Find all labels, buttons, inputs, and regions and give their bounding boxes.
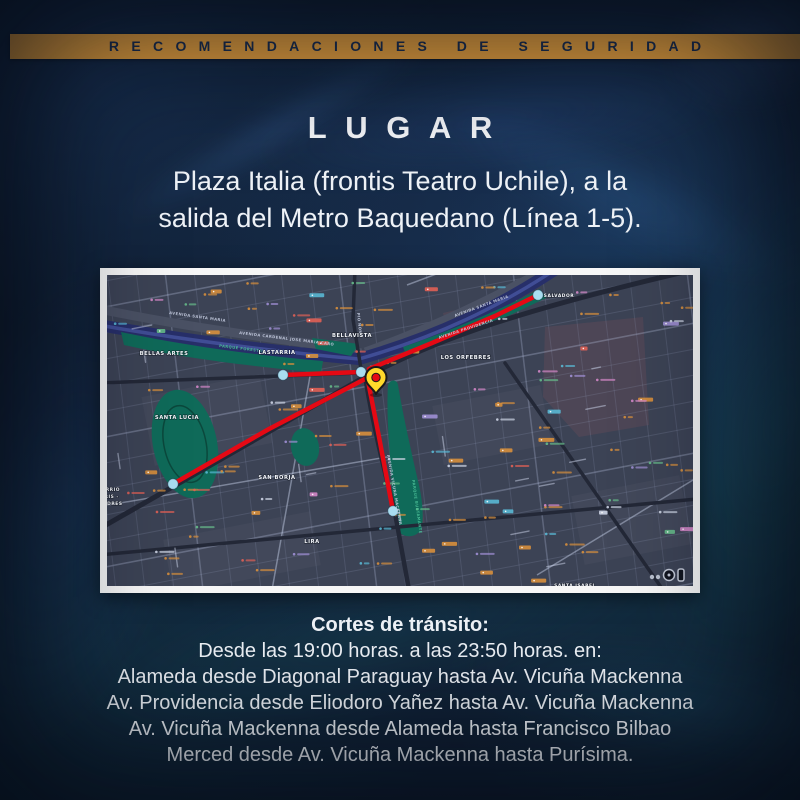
- map-poi-label: [356, 282, 365, 284]
- map-poi-label: [488, 517, 495, 519]
- map-poi-glyph: [254, 512, 256, 514]
- map-poi-dot: [484, 516, 487, 519]
- map-poi-label: [297, 553, 309, 555]
- map-poi-label: [225, 470, 236, 472]
- map-poi-dot: [552, 471, 555, 474]
- neighborhood-label: BARRIO: [107, 487, 120, 493]
- security-banner: RECOMENDACIONES DE SEGURIDAD: [10, 34, 800, 59]
- closure-route-merced: [283, 372, 361, 375]
- map-poi-chip: [425, 287, 438, 291]
- neighborhood-label: PARIS -: [107, 494, 119, 500]
- map-poi-dot: [544, 504, 547, 507]
- map-poi-label: [391, 362, 397, 364]
- map-poi-label: [334, 485, 348, 487]
- map-poi-label: [543, 427, 550, 429]
- map-poi-label: [275, 402, 286, 404]
- map-poi-chip: [480, 571, 493, 575]
- map-poi-dot: [283, 363, 286, 366]
- map-poi-glyph: [147, 472, 149, 474]
- map-poi-dot: [481, 286, 484, 289]
- map-poi-label: [653, 462, 663, 464]
- map-poi-dot: [329, 444, 332, 447]
- map-poi-label: [171, 573, 183, 575]
- map-poi-glyph: [502, 450, 504, 452]
- map-poi-dot: [538, 370, 541, 373]
- map-poi-label: [557, 471, 572, 473]
- map-poi-dot: [431, 450, 434, 453]
- map-poi-label: [500, 419, 515, 421]
- map-poi-dot: [153, 489, 156, 492]
- map-poi-dot: [476, 553, 479, 556]
- map-poi-label: [364, 562, 370, 564]
- map-poi-label: [565, 365, 575, 367]
- map-poi-dot: [155, 551, 158, 554]
- map-poi-chip: [500, 448, 513, 452]
- map-poi-label: [635, 466, 647, 468]
- map-poi-label: [613, 499, 619, 501]
- map-poi-label: [420, 508, 430, 510]
- map-poi-dot: [680, 469, 683, 472]
- map-poi-glyph: [311, 389, 313, 391]
- map-poi-label: [574, 375, 585, 377]
- map-poi-dot: [496, 418, 499, 421]
- traffic-heading: Cortes de tránsito:: [0, 612, 800, 638]
- map-poi-dot: [204, 293, 207, 296]
- map-poi-label: [381, 563, 392, 565]
- map-poi-dot: [539, 379, 542, 382]
- map-poi-dot: [167, 573, 170, 576]
- map-image: AVENIDA SANTA MARIAAVENIDA CARDENAL JOSE…: [107, 275, 693, 586]
- map-poi-label: [392, 458, 405, 460]
- map-poi-label: [169, 557, 180, 559]
- map-poi-label: [365, 324, 373, 326]
- map-poi-dot: [330, 485, 333, 488]
- map-poi-dot: [377, 562, 380, 565]
- map-poi-dot: [474, 388, 477, 391]
- map-poi-label: [452, 465, 467, 467]
- map-poi-glyph: [682, 528, 684, 530]
- map-poi-dot: [220, 470, 223, 473]
- map-poi-label: [663, 511, 677, 513]
- map-poi-dot: [241, 559, 244, 562]
- map-poi-dot: [596, 379, 599, 382]
- closure-line: Merced desde Av. Vicuña Mackenna hasta P…: [0, 742, 800, 768]
- map-poi-dot: [256, 569, 259, 572]
- map-poi-label: [208, 293, 217, 295]
- map-poi-dot: [127, 492, 130, 495]
- map-poi-chip: [157, 329, 166, 333]
- banner-text: RECOMENDACIONES DE SEGURIDAD: [97, 38, 714, 54]
- map-poi-dot: [561, 365, 564, 368]
- map-poi-dot: [269, 327, 272, 330]
- map-poi-label: [200, 386, 210, 388]
- map-poi-dot: [336, 307, 339, 310]
- map-poi-glyph: [424, 550, 426, 552]
- map-poi-label: [228, 466, 239, 468]
- map-poi-dot: [193, 489, 196, 492]
- location-line-2: salida del Metro Baquedano (Línea 1-5).: [0, 200, 800, 237]
- map-poi-label: [271, 303, 279, 305]
- map-poi-glyph: [550, 411, 552, 413]
- neighborhood-label: SAN BORJA: [258, 475, 295, 481]
- map-poi-chip: [145, 470, 157, 474]
- neighborhood-label: LOS ORFEBRES: [441, 355, 491, 361]
- map-poi-dot: [666, 464, 669, 467]
- map-poi-label: [287, 363, 294, 365]
- map-poi-dot: [610, 449, 613, 452]
- map-poi-dot: [189, 535, 192, 538]
- map-poi-glyph: [482, 572, 484, 574]
- map-poi-dot: [156, 511, 159, 514]
- map-poi-label: [334, 444, 347, 446]
- map-poi-dot: [570, 375, 573, 378]
- map-poi-chip: [503, 509, 514, 513]
- map-poi-label: [453, 519, 466, 521]
- map-poi-dot: [670, 320, 673, 323]
- map-poi-dot: [608, 499, 611, 502]
- route-endpoint: [168, 479, 178, 489]
- map-poi-glyph: [505, 511, 507, 513]
- map-poi-label: [159, 551, 174, 553]
- map-poi-label: [193, 536, 198, 538]
- map-poi-glyph: [667, 531, 669, 533]
- map-poi-label: [569, 543, 584, 545]
- neighborhood-label: BELLAVISTA: [332, 333, 372, 339]
- map-poi-chip: [680, 527, 693, 531]
- map-poi-glyph: [312, 295, 314, 297]
- map-poi-dot: [498, 318, 501, 321]
- map-poi-glyph: [358, 433, 360, 435]
- map-poi-label: [665, 302, 670, 304]
- map-poi-label: [635, 400, 647, 402]
- map-poi-glyph: [312, 494, 314, 496]
- map-poi-dot: [246, 282, 249, 285]
- map-poi-dot: [374, 309, 377, 312]
- map-poi-chip: [599, 511, 608, 515]
- map-poi-glyph: [213, 291, 215, 293]
- map-poi-glyph: [665, 323, 667, 325]
- map-poi-glyph: [541, 439, 543, 441]
- map-poi-dot: [631, 466, 634, 469]
- map-poi-glyph: [159, 330, 161, 332]
- map-poi-label: [584, 313, 599, 315]
- map-poi-label: [480, 553, 495, 555]
- map-poi-label: [188, 489, 199, 491]
- location-text: Plaza Italia (frontis Teatro Uchile), a …: [0, 163, 800, 237]
- map-poi-dot: [293, 553, 296, 556]
- map-poi-label: [273, 327, 280, 329]
- neighborhood-label: LASTARRIA: [258, 350, 295, 356]
- map-poi-glyph: [487, 501, 489, 503]
- map-poi-label: [478, 388, 486, 390]
- map-poi-chip: [206, 330, 219, 334]
- map-poi-glyph: [521, 547, 523, 549]
- map-poi-label: [614, 449, 619, 451]
- map-poi-dot: [609, 294, 612, 297]
- map-poi-dot: [293, 314, 296, 317]
- map-poi-dot: [164, 557, 167, 560]
- map-poi-label: [685, 469, 693, 471]
- map-poi-dot: [284, 440, 287, 443]
- map-poi-dot: [660, 302, 663, 305]
- map-poi-label: [670, 464, 678, 466]
- map-poi-dot: [196, 385, 199, 388]
- route-endpoint: [278, 370, 288, 380]
- map-poi-dot: [681, 306, 684, 309]
- map-poi-label: [586, 551, 599, 553]
- map-poi-label: [674, 320, 684, 322]
- map-poi-glyph: [497, 404, 499, 406]
- map-poi-label: [544, 379, 558, 381]
- map-poi-dot: [582, 551, 585, 554]
- map-poi-glyph: [308, 355, 310, 357]
- map-poi-dot: [114, 322, 117, 325]
- map-poi-dot: [539, 426, 542, 429]
- map-poi-label: [246, 559, 256, 561]
- map-poi-dot: [248, 307, 251, 310]
- map-poi-glyph: [444, 543, 446, 545]
- map-poi-label: [319, 435, 332, 437]
- map-poi-label: [297, 314, 310, 316]
- map-poi-label: [502, 318, 507, 320]
- dots-icon: [650, 575, 654, 579]
- map-poi-dot: [606, 506, 609, 509]
- map-poi-dot: [270, 401, 273, 404]
- closure-line: Av. Vicuña Mackenna desde Alameda hasta …: [0, 716, 800, 742]
- map-poi-dot: [511, 465, 514, 468]
- map-poi-glyph: [309, 320, 311, 322]
- map-poi-chip: [251, 511, 260, 515]
- map-poi-dot: [261, 498, 264, 501]
- closure-line: Av. Providencia desde Eliodoro Yañez has…: [0, 690, 800, 716]
- map-poi-chip: [306, 354, 318, 358]
- map-poi-label: [157, 490, 165, 492]
- map-poi-dot: [351, 282, 354, 285]
- map-poi-chip: [519, 546, 531, 550]
- map-frame: AVENIDA SANTA MARIAAVENIDA CARDENAL JOSE…: [100, 268, 700, 593]
- map-poi-dot: [576, 291, 579, 294]
- map-poi-glyph: [293, 405, 295, 407]
- map-poi-label: [197, 489, 209, 491]
- map-poi-dot: [545, 533, 548, 536]
- map-poi-label: [549, 533, 556, 535]
- map-poi-dot: [360, 562, 363, 565]
- map-poi-label: [485, 287, 495, 289]
- map-poi-label: [155, 299, 164, 301]
- map-poi-label: [118, 323, 127, 325]
- map-poi-chip: [310, 492, 318, 496]
- map-poi-dot: [546, 442, 549, 445]
- map-poi-dot: [184, 303, 187, 306]
- map-poi-label: [497, 286, 505, 288]
- map-poi-chip: [291, 404, 302, 408]
- map-poi-dot: [205, 471, 208, 474]
- map-poi-label: [685, 307, 693, 309]
- map-poi-label: [283, 408, 298, 410]
- map-poi-label: [436, 451, 450, 453]
- map-poi-label: [600, 379, 615, 381]
- route-endpoint: [533, 290, 543, 300]
- map-poi-label: [265, 498, 272, 500]
- map-poi-glyph: [424, 416, 426, 418]
- neighborhood-label: LIRA: [304, 539, 319, 545]
- traffic-info: Cortes de tránsito: Desde las 19:00 hora…: [0, 612, 800, 768]
- map-poi-label: [152, 389, 163, 391]
- map-poi-label: [340, 307, 353, 309]
- map-poi-glyph: [209, 332, 211, 334]
- map-poi-label: [189, 303, 197, 305]
- map-poi-label: [628, 416, 633, 418]
- map-poi-label: [613, 294, 618, 296]
- neighborhood-label: LONDRES: [107, 501, 123, 507]
- map-poi-glyph: [451, 460, 453, 462]
- map-poi-label: [334, 385, 339, 387]
- map-poi-dot: [565, 543, 568, 546]
- map-poi-label: [360, 351, 366, 353]
- map-poi-dot: [580, 313, 583, 316]
- map-poi-label: [515, 465, 529, 467]
- map-poi-dot: [196, 526, 199, 529]
- map-poi-glyph: [533, 580, 535, 582]
- map-poi-label: [542, 370, 558, 372]
- page-title: LUGAR: [0, 108, 800, 148]
- map-poi-label: [131, 492, 144, 494]
- map-poi-dot: [150, 299, 153, 302]
- map-poi-label: [200, 526, 215, 528]
- map-poi-label: [160, 511, 174, 513]
- map-poi-glyph: [601, 512, 603, 514]
- neighborhood-label: BELLAS ARTES: [140, 351, 189, 357]
- map-poi-dot: [449, 519, 452, 522]
- map-poi-chip: [548, 410, 561, 414]
- map-poi-label: [580, 291, 587, 293]
- page-title-text: LUGAR: [289, 110, 511, 145]
- map-poi-label: [611, 506, 622, 508]
- map-poi-dot: [659, 511, 662, 514]
- map-poi-label: [384, 528, 392, 530]
- map-poi-glyph: [427, 288, 429, 290]
- map-poi-label: [260, 569, 275, 571]
- neighborhood-label: SANTA ISABEL: [554, 583, 596, 586]
- neighborhood-label: SANTA LUCIA: [155, 415, 199, 421]
- map-poi-chip: [211, 290, 222, 294]
- map-poi-dot: [379, 527, 382, 530]
- map-poi-dot: [623, 416, 626, 419]
- map-poi-dot: [330, 385, 333, 388]
- map-poi-label: [251, 282, 259, 284]
- closure-line: Alameda desde Diagonal Paraguay hasta Av…: [0, 664, 800, 690]
- map-poi-dot: [447, 465, 450, 468]
- map-poi-label: [550, 443, 565, 445]
- map-poi-chip: [665, 530, 675, 534]
- map-poi-label: [378, 309, 393, 311]
- map-poi-dot: [266, 303, 269, 306]
- traffic-schedule: Desde las 19:00 horas. a las 23:50 horas…: [0, 638, 800, 664]
- map-poi-dot: [649, 462, 652, 465]
- map-poi-dot: [278, 408, 281, 411]
- map-poi-glyph: [583, 348, 585, 350]
- map-poi-dot: [315, 435, 318, 438]
- poster: RECOMENDACIONES DE SEGURIDAD LUGAR Plaza…: [0, 0, 800, 800]
- map-poi-label: [548, 504, 559, 506]
- map-poi-label: [548, 506, 562, 508]
- map-poi-dot: [355, 350, 358, 353]
- neighborhood-label: SALVADOR: [544, 293, 574, 299]
- map-poi-chip: [449, 459, 463, 463]
- map-poi-dot: [183, 488, 186, 491]
- map-poi-chip: [422, 549, 435, 553]
- map-poi-dot: [631, 400, 634, 403]
- phone-icon: [678, 569, 684, 581]
- map-poi-label: [252, 308, 257, 310]
- map-poi-label: [289, 441, 298, 443]
- map-poi-dot: [148, 389, 151, 392]
- map-poi-dot: [224, 465, 227, 468]
- location-line-1: Plaza Italia (frontis Teatro Uchile), a …: [0, 163, 800, 200]
- map-poi-label: [501, 402, 515, 404]
